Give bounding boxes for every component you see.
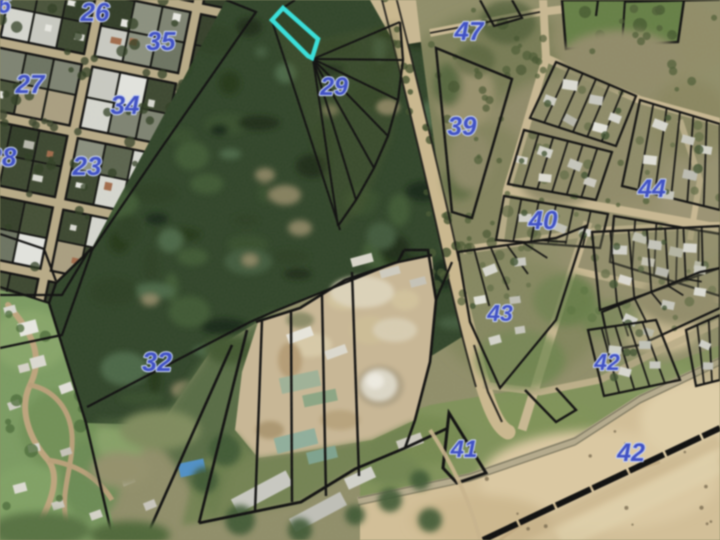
svg-text:23: 23 (72, 151, 102, 181)
svg-text:47: 47 (454, 16, 485, 46)
svg-text:28: 28 (0, 142, 17, 172)
svg-text:40: 40 (528, 205, 558, 235)
svg-text:44: 44 (637, 175, 666, 203)
svg-text:6: 6 (0, 0, 11, 19)
svg-text:34: 34 (111, 90, 140, 120)
svg-text:42: 42 (593, 349, 620, 375)
svg-text:29: 29 (319, 73, 348, 101)
svg-text:43: 43 (486, 300, 513, 326)
svg-text:35: 35 (147, 26, 176, 56)
svg-text:26: 26 (80, 0, 110, 27)
svg-text:41: 41 (450, 436, 478, 463)
svg-text:27: 27 (15, 69, 46, 99)
svg-text:32: 32 (142, 347, 172, 377)
svg-text:39: 39 (448, 111, 477, 141)
svg-text:42: 42 (616, 439, 645, 467)
